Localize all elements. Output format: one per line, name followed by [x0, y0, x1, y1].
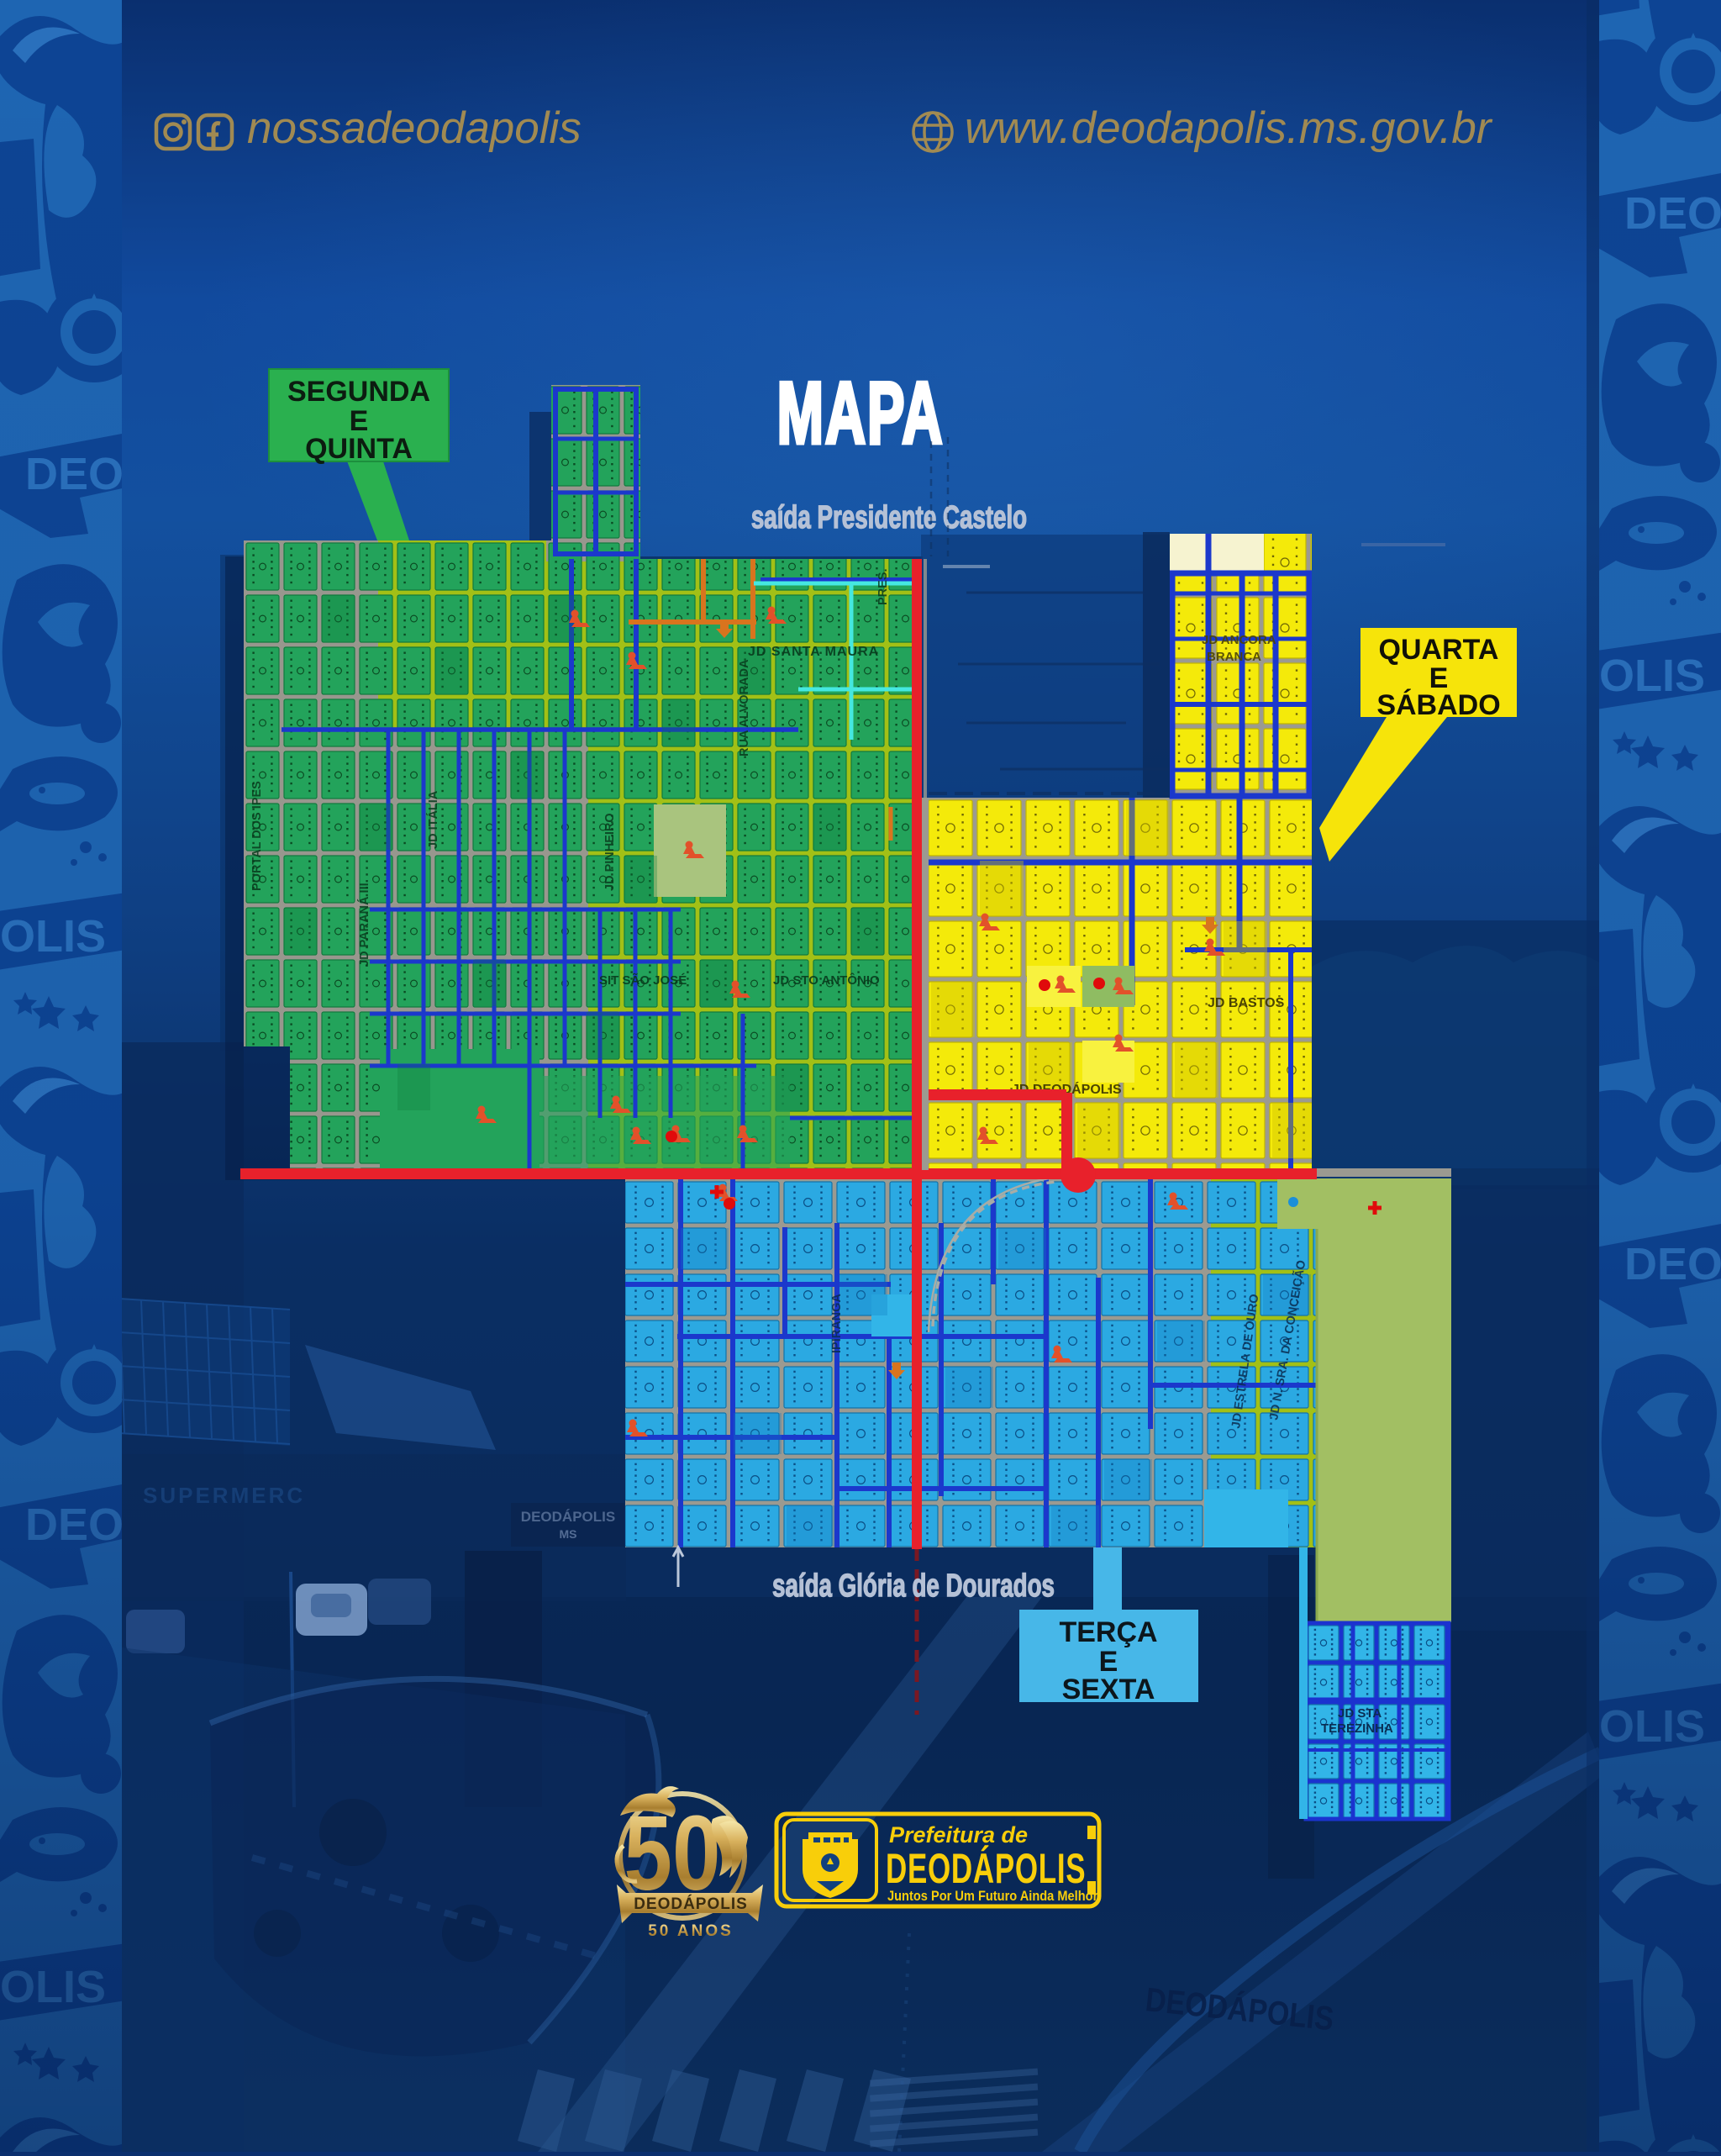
- svg-text:JD PINHEIRO: JD PINHEIRO: [603, 813, 617, 891]
- svg-text:JD SANTA MAURA: JD SANTA MAURA: [748, 645, 879, 659]
- svg-text:PORTAL DOS IPES: PORTAL DOS IPES: [250, 781, 264, 891]
- svg-text:SEXTA: SEXTA: [1062, 1674, 1155, 1705]
- svg-text:RUA ALVORADA: RUA ALVORADA: [738, 659, 751, 756]
- svg-text:50 ANOS: 50 ANOS: [648, 1922, 734, 1940]
- svg-text:nossadeodapolis: nossadeodapolis: [247, 103, 582, 153]
- svg-text:TERÇA: TERÇA: [1059, 1616, 1157, 1648]
- svg-text:JD BASTOS: JD BASTOS: [1208, 996, 1285, 1010]
- svg-text:QUINTA: QUINTA: [305, 433, 413, 465]
- svg-text:Prefeitura de: Prefeitura de: [889, 1822, 1028, 1848]
- svg-text:IPIRANGA: IPIRANGA: [830, 1294, 844, 1353]
- svg-text:MS: MS: [560, 1527, 577, 1541]
- svg-text:JD ANCORA: JD ANCORA: [1202, 633, 1276, 647]
- svg-text:MAPA: MAPA: [777, 364, 945, 462]
- svg-text:saída Glória de Dourados: saída Glória de Dourados: [772, 1568, 1055, 1604]
- svg-text:DEODÁPOLIS: DEODÁPOLIS: [634, 1895, 748, 1913]
- svg-text:SEGUNDA: SEGUNDA: [287, 376, 430, 408]
- svg-text:www.deodapolis.ms.gov.br: www.deodapolis.ms.gov.br: [965, 103, 1493, 153]
- svg-text:JD PARANÁ III: JD PARANÁ III: [357, 883, 371, 967]
- svg-text:JD ITÁLIA: JD ITÁLIA: [426, 790, 440, 849]
- svg-text:Juntos Por Um Futuro Ainda Mel: Juntos Por Um Futuro Ainda Melhor: [887, 1889, 1097, 1904]
- svg-text:SUPERMERC: SUPERMERC: [143, 1483, 305, 1508]
- svg-text:DEODÁPOLIS: DEODÁPOLIS: [886, 1846, 1086, 1893]
- svg-text:DEODÁPOLIS: DEODÁPOLIS: [521, 1509, 615, 1525]
- svg-text:TEREZINHA: TEREZINHA: [1321, 1721, 1393, 1736]
- svg-text:saída Presidente Castelo: saída Presidente Castelo: [751, 500, 1027, 535]
- svg-text:JD STA: JD STA: [1338, 1706, 1382, 1721]
- svg-text:JD STO ANTÔNIO: JD STO ANTÔNIO: [773, 973, 880, 988]
- svg-text:QUARTA: QUARTA: [1379, 634, 1499, 666]
- svg-text:SÁBADO: SÁBADO: [1376, 689, 1500, 721]
- svg-text:SIT SÃO JOSÉ: SIT SÃO JOSÉ: [599, 973, 687, 988]
- svg-text:PRES.: PRES.: [876, 568, 890, 605]
- svg-text:BRANCA: BRANCA: [1207, 650, 1261, 664]
